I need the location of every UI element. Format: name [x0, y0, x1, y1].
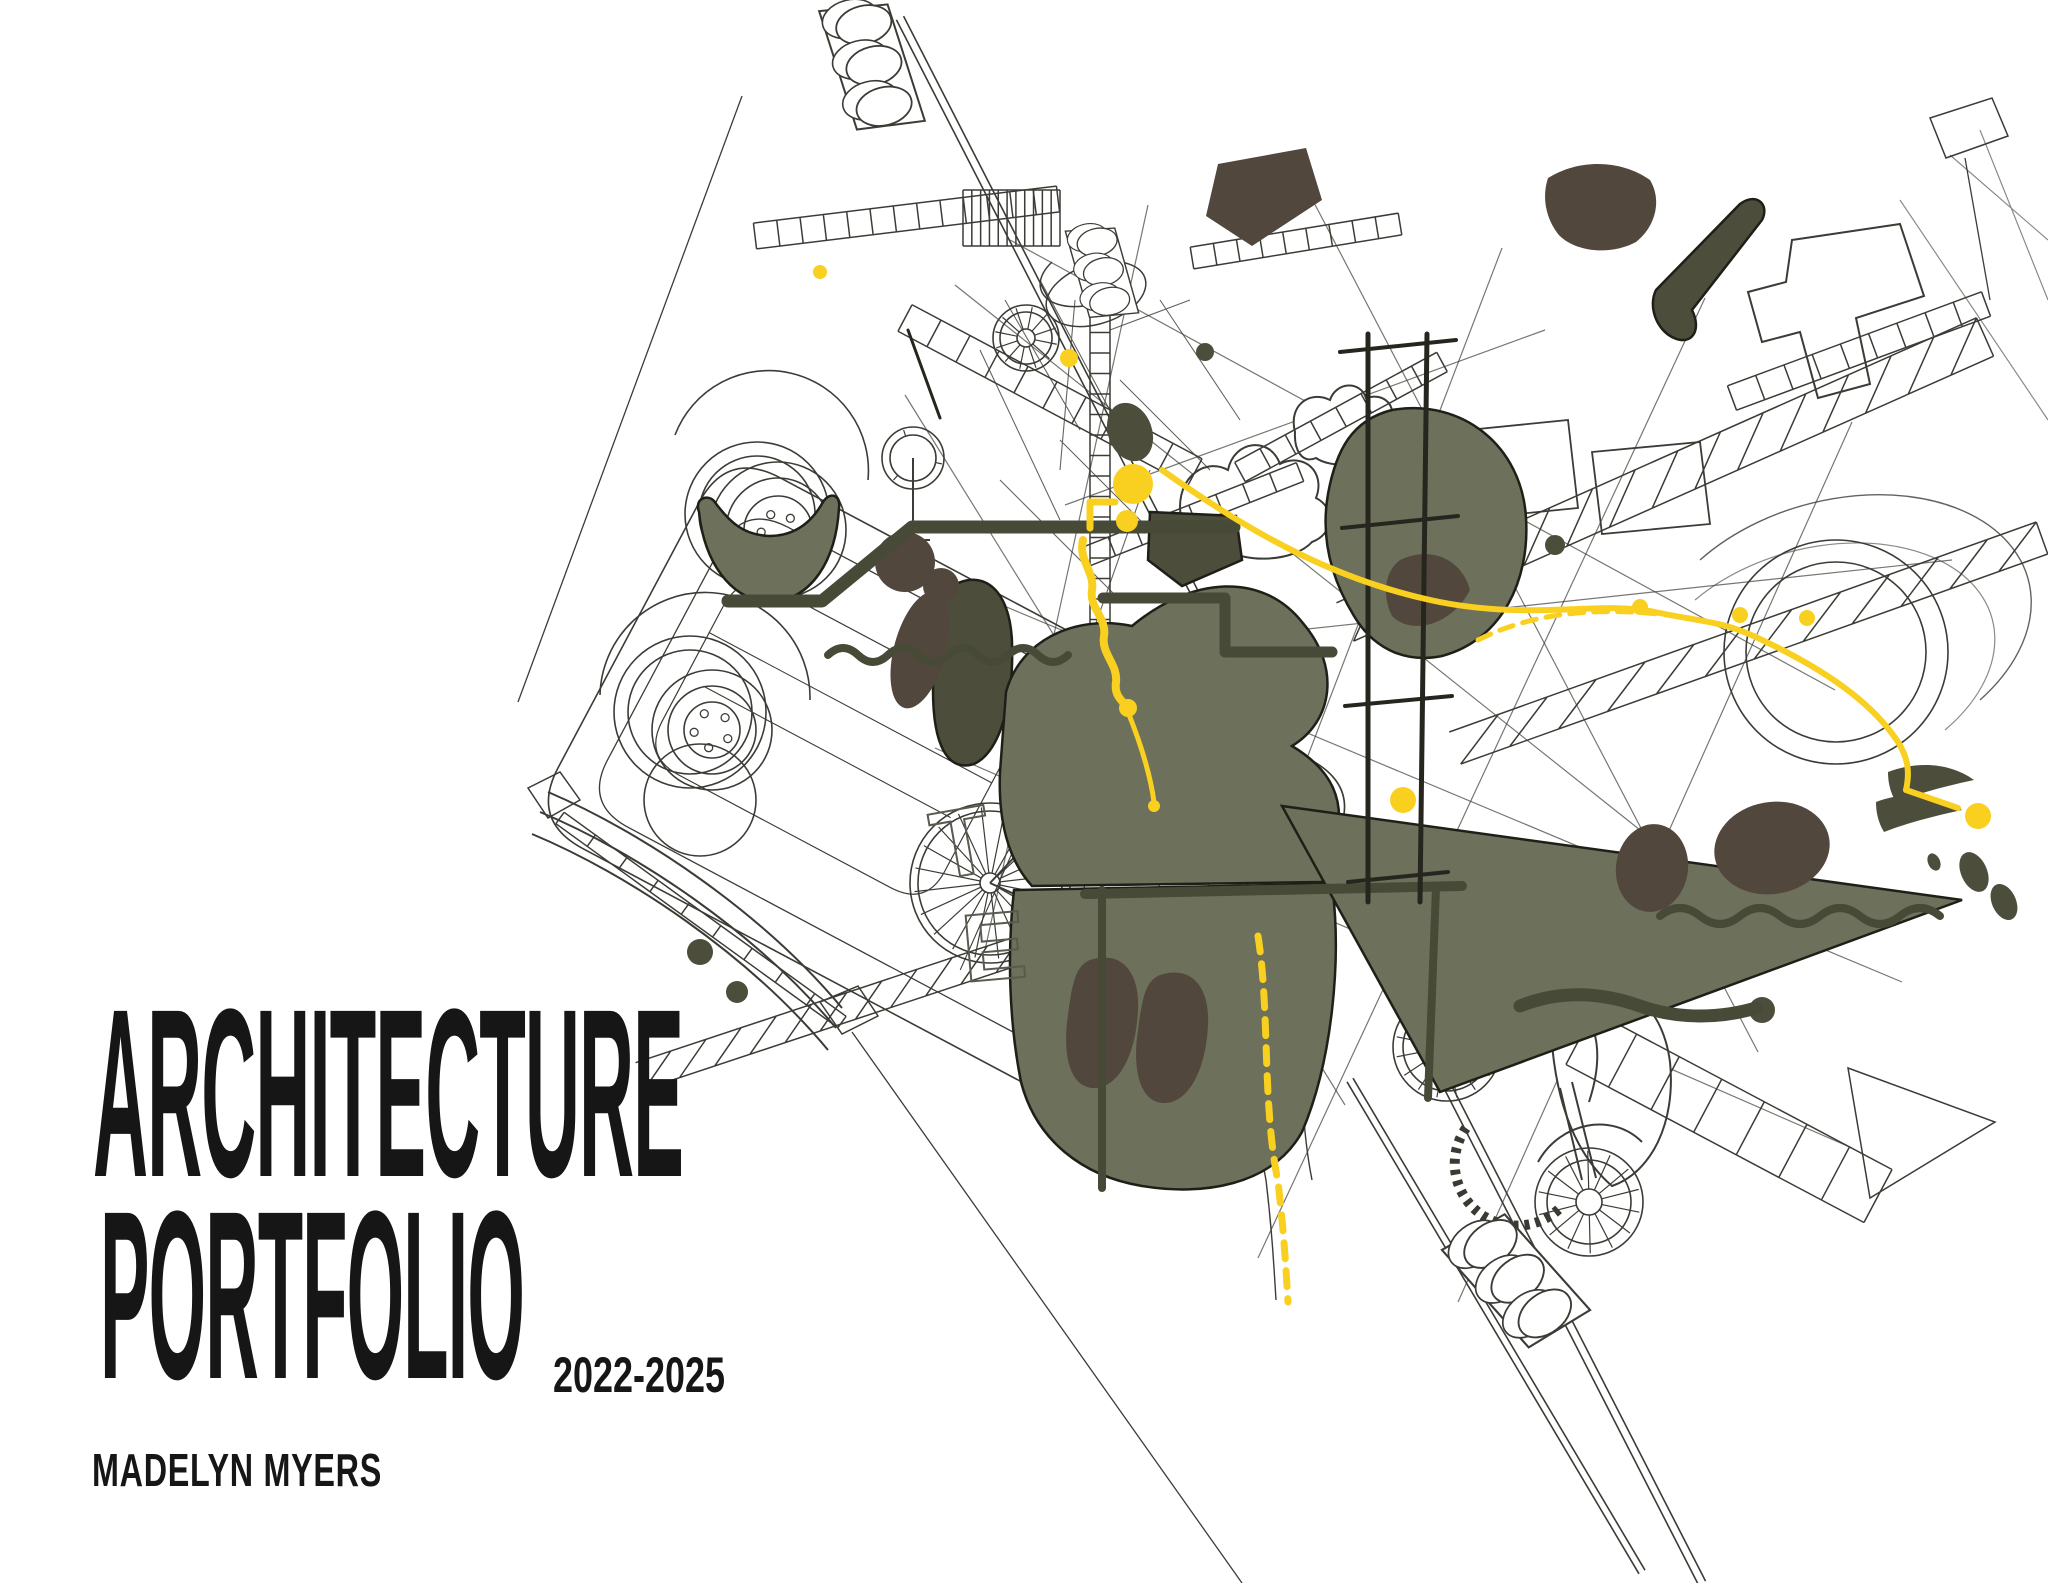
route-dot-icon	[1732, 607, 1748, 623]
title-line-2: PORTFOLIO	[100, 1161, 524, 1429]
traffic-light-icon	[818, 0, 925, 139]
tube-bar-icon	[908, 330, 940, 418]
route-dot-icon	[1390, 787, 1416, 813]
wheel-icon	[1000, 312, 1052, 364]
route-dot-icon	[1965, 803, 1991, 829]
silhouette-shape	[1000, 586, 1339, 886]
wheel-icon	[1724, 540, 1948, 764]
truss-ladder-icon	[753, 186, 1059, 249]
silhouette-shape	[726, 981, 748, 1003]
title-block: ARCHITECTURE PORTFOLIO 2022-2025 MADELYN…	[92, 959, 725, 1496]
wheel-icon	[668, 686, 756, 774]
wheel-icon	[644, 744, 756, 856]
route-dot-icon	[1119, 699, 1137, 717]
portfolio-cover-page: TE ARCHITECTURE PORTFOLIO 2022-2025 MADE…	[0, 0, 2048, 1583]
silhouette-shape	[1876, 795, 1962, 832]
author-name: MADELYN MYERS	[92, 1444, 382, 1496]
route-dot-icon	[1148, 800, 1160, 812]
silhouette-shape	[1954, 848, 1995, 897]
silhouette-shape	[1196, 343, 1214, 361]
wheel-icon	[1535, 1148, 1643, 1256]
route-dot-icon	[1060, 349, 1078, 367]
wheel-icon	[1017, 329, 1035, 347]
silhouette-shape	[1206, 148, 1322, 246]
route-dot-icon	[1113, 464, 1153, 504]
route-dot-icon	[1632, 599, 1648, 615]
silhouette-shape	[1985, 880, 2022, 924]
years-label: 2022-2025	[553, 1347, 725, 1403]
wheel-icon	[652, 670, 772, 790]
route-dot-icon	[1116, 510, 1138, 532]
exploded-collage-illustration: TE	[518, 0, 2048, 1583]
silhouette-shape	[1653, 199, 1764, 340]
route-dot-icon	[1799, 610, 1815, 626]
ghost-letter: E	[958, 891, 1031, 1003]
traffic-light-icon	[1065, 217, 1139, 324]
wheel-icon	[1576, 1189, 1602, 1215]
route-line-icon	[1478, 612, 1690, 640]
wheel-icon	[993, 305, 1059, 371]
wheel-icon	[1547, 1160, 1631, 1244]
silhouette-shape	[1545, 535, 1565, 555]
silhouette-shape	[1925, 851, 1943, 872]
silhouette-shape	[1545, 164, 1656, 250]
route-dot-icon	[813, 265, 827, 279]
cover-canvas: TE ARCHITECTURE PORTFOLIO 2022-2025 MADE…	[0, 0, 2048, 1583]
pole-icon	[518, 96, 742, 702]
silhouette-shape	[687, 939, 713, 965]
